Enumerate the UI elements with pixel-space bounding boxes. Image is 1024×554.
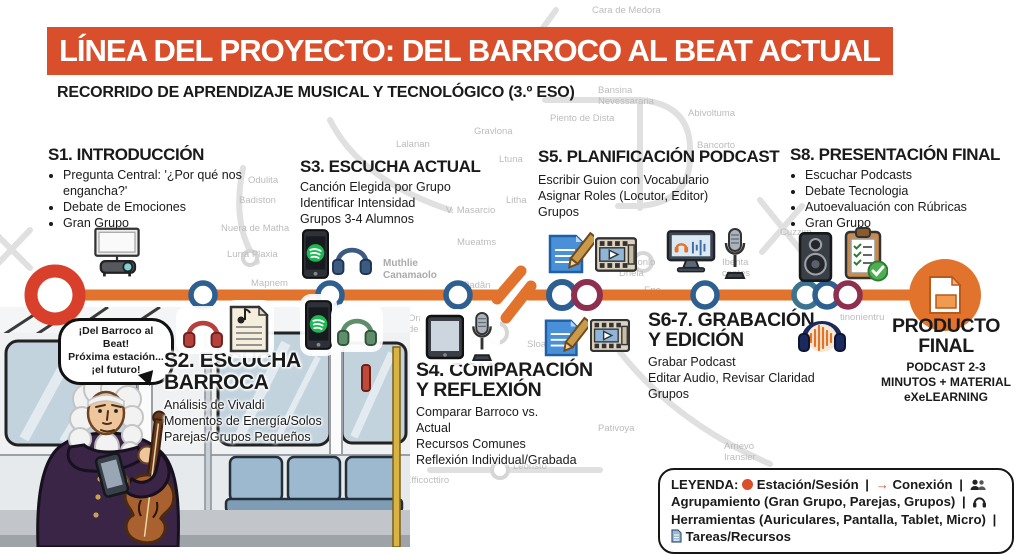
s8-bullet: Escuchar Podcasts (805, 167, 1015, 183)
phone-spotify-icon (302, 296, 335, 354)
legend-item-text: Estación/Sesión (757, 477, 859, 492)
headphones-icon (972, 495, 987, 508)
metro-map-label: Gravlona (474, 127, 513, 138)
clipboard-check-icon (842, 227, 888, 283)
metro-map-label: Ene (644, 286, 661, 297)
legend-box: LEYENDA: Estación/Sesión | → Conexión | … (658, 468, 1014, 554)
station-title-s5: S5. PLANIFICACIÓN PODCAST (538, 148, 798, 166)
legend-separator: | (956, 477, 966, 492)
page-title: LÍNEA DEL PROYECTO: DEL BARROCO AL BEAT … (59, 33, 880, 69)
station-s6 (693, 283, 717, 307)
metro-map-label: Lurra Plaxia (227, 250, 278, 261)
metro-map-label: Arrievo Iransier (724, 442, 756, 464)
station-title-s4: S4. COMPARACIÓN Y REFLEXIÓN (416, 360, 596, 401)
headphones-green-icon (333, 306, 381, 350)
video-player-icon (590, 319, 630, 352)
s67-details: Grabar Podcast Editar Audio, Revisar Cla… (648, 354, 868, 402)
video-player-icon (595, 237, 637, 272)
script-pencil-icon (548, 230, 594, 274)
speaker-icon (798, 231, 833, 283)
legend-item-text: Tareas/Recursos (686, 529, 791, 544)
station-title-producto: PRODUCTO FINAL (878, 316, 1014, 357)
headphones-red-icon (178, 308, 228, 352)
s1-bullet: Pregunta Central: '¿Por qué nos engancha… (63, 167, 286, 199)
metro-map-label: Mapnem (251, 279, 288, 290)
legend-separator: | (990, 512, 1000, 527)
station-title-s1: S1. INTRODUCCIÓN (48, 146, 286, 164)
metro-map-label: Lalanan (396, 140, 430, 151)
station-block-s2: S2. ESCUCHA BARROCA Análisis de Vivaldi … (164, 350, 394, 445)
s5-details: Escribir Guion con Vocabulario Asignar R… (538, 172, 798, 220)
s2-details: Análisis de Vivaldi Momentos de Energía/… (164, 397, 394, 445)
producto-details: PODCAST 2-3 MINUTOS + MATERIAL eXeLEARNI… (878, 360, 1014, 405)
metro-map-label: Litha (506, 196, 527, 207)
metro-map-label: Bansina Nevessararia (598, 86, 654, 108)
legend-item-text: Conexión (893, 477, 953, 492)
legend-separator: | (959, 494, 969, 509)
station-title-s8: S8. PRESENTACIÓN FINAL (790, 146, 1015, 164)
headphones-blue-icon (331, 238, 373, 276)
legend-item-text: Agrupamiento (Gran Grupo, Parejas, Grupo… (671, 494, 955, 509)
station-s2 (191, 283, 215, 307)
metro-map-label: Piento de Dista (550, 114, 614, 125)
metro-map-label: Pativoya (598, 424, 634, 435)
s8-bullet: Debate Tecnologia (805, 183, 1015, 199)
phone-spotify-icon (302, 228, 329, 280)
station-block-s8: S8. PRESENTACIÓN FINAL Escuchar Podcasts… (790, 146, 1015, 231)
page-subtitle: RECORRIDO DE APRENDIZAJE MUSICAL Y TECNO… (57, 84, 575, 102)
legend-separator: | (862, 477, 872, 492)
station-s5-interchange-a (549, 282, 575, 308)
metro-map-label: Cara de Medora (592, 6, 661, 17)
station-s8-interchange-b (815, 283, 839, 307)
metro-map-label: Muthlie Canamaolo (383, 258, 437, 281)
station-block-s3: S3. ESCUCHA ACTUAL Canción Elegida por G… (300, 158, 505, 227)
metro-map-label: Padãn (463, 281, 490, 292)
station-block-s4: S4. COMPARACIÓN Y REFLEXIÓN Comparar Bar… (416, 360, 596, 468)
station-block-s5: S5. PLANIFICACIÓN PODCAST Escribir Guion… (538, 148, 798, 220)
speech-bubble: ¡Del Barroco al Beat! Próxima estación..… (58, 318, 174, 385)
station-s8-interchange-c (836, 283, 860, 307)
s3-details: Canción Elegida por Grupo Identificar In… (300, 179, 505, 227)
s1-bullet: Debate de Emociones (63, 199, 286, 215)
s8-bullet: Gran Grupo (805, 215, 1015, 231)
tablet-icon (422, 311, 468, 363)
file-document-icon (930, 277, 960, 313)
title-banner: LÍNEA DEL PROYECTO: DEL BARROCO AL BEAT … (47, 27, 893, 75)
station-title-s3: S3. ESCUCHA ACTUAL (300, 158, 505, 176)
station-dot-icon (742, 479, 753, 490)
legend-label: LEYENDA: (671, 477, 738, 492)
station-s5-interchange-b (574, 282, 600, 308)
metro-map-label: Efficocttiro (405, 476, 449, 487)
station-title-s2: S2. ESCUCHA BARROCA (164, 350, 394, 394)
computer-audio-icon (666, 229, 716, 274)
arrow-icon: → (876, 477, 889, 492)
audacity-icon (796, 314, 848, 356)
microphone-icon (466, 308, 498, 364)
station-block-producto: PRODUCTO FINAL PODCAST 2-3 MINUTOS + MAT… (878, 316, 1014, 405)
metro-map-label: Abivoltuma (688, 109, 735, 120)
s8-bullet: Autoevaluación con Rúbricas (805, 199, 1015, 215)
legend-item-text: Herramientas (Auriculares, Pantalla, Tab… (671, 512, 986, 527)
s4-details: Comparar Barroco vs. Actual Recursos Com… (416, 404, 596, 468)
people-icon (970, 479, 986, 491)
station-block-s1: S1. INTRODUCCIÓN Pregunta Central: '¿Por… (48, 146, 286, 231)
microphone-icon (722, 227, 748, 279)
metro-map-label: Mueatms (457, 238, 496, 249)
projector-icon (90, 226, 144, 280)
sheet-music-icon (226, 302, 272, 356)
doc-icon (671, 529, 682, 543)
script-pencil-icon (544, 315, 588, 357)
station-s8-interchange-a (794, 283, 818, 307)
